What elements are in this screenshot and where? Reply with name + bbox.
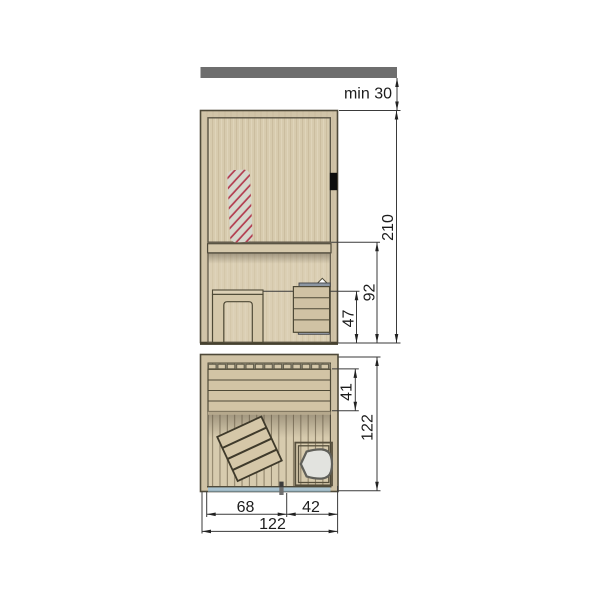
svg-text:68: 68: [237, 499, 255, 516]
svg-text:210: 210: [380, 214, 397, 241]
svg-text:122: 122: [259, 516, 286, 533]
svg-text:47: 47: [341, 310, 358, 328]
svg-text:42: 42: [302, 499, 320, 516]
svg-text:41: 41: [339, 383, 356, 401]
svg-text:92: 92: [362, 284, 379, 302]
svg-text:122: 122: [360, 414, 377, 441]
svg-text:min 30: min 30: [344, 86, 392, 103]
